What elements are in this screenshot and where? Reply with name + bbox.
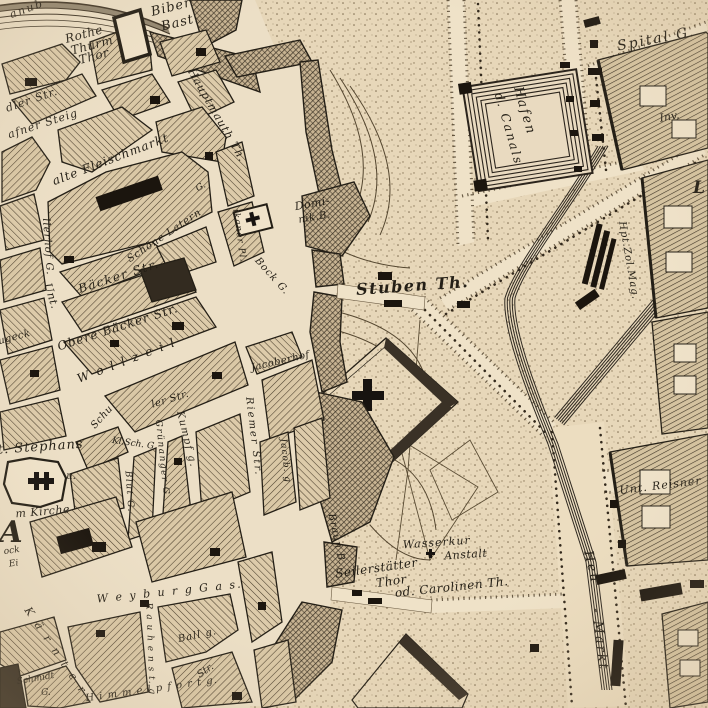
map-page: anubBiberBast.RotheThurmThorSpital G.Haf… <box>0 0 708 708</box>
vienna-engraved-map: anubBiberBast.RotheThurmThorSpital G.Haf… <box>0 0 708 708</box>
paper-vignette <box>0 0 708 708</box>
